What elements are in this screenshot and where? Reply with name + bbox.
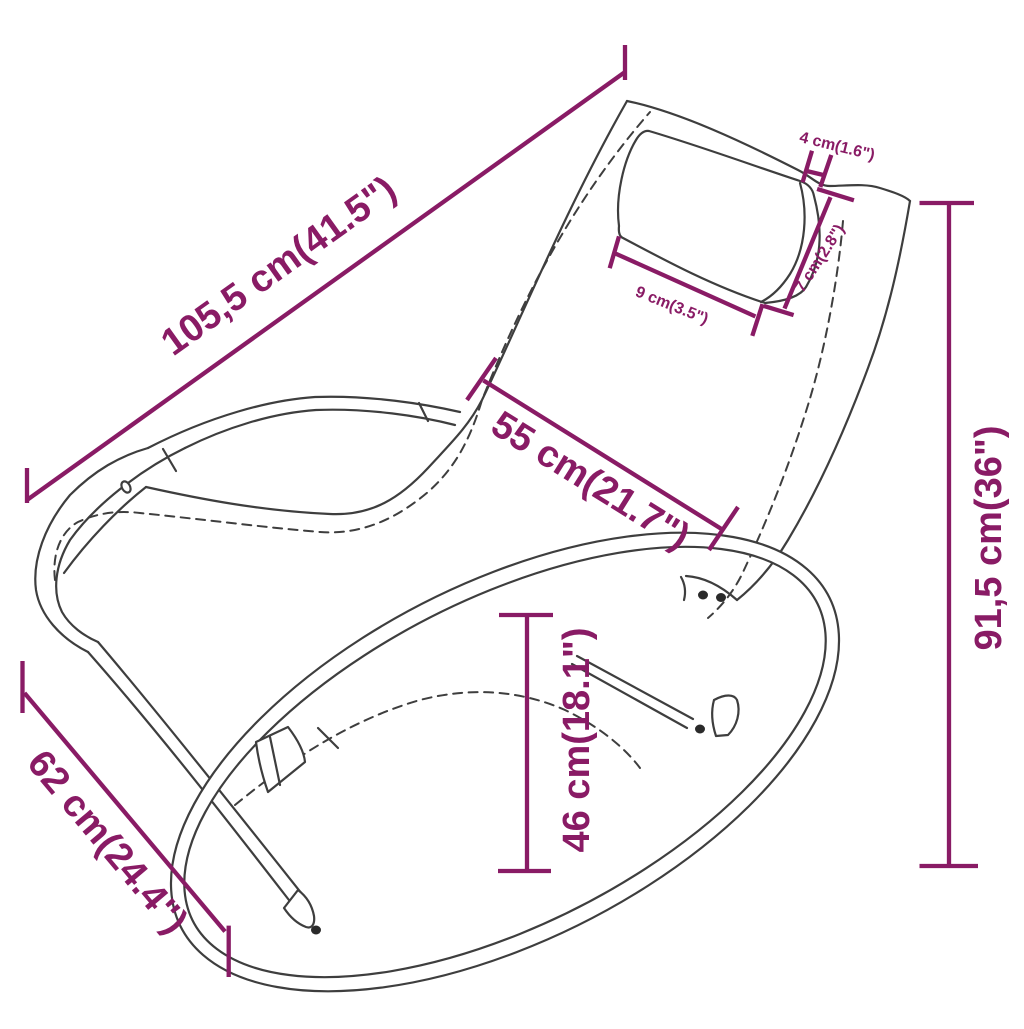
svg-text:46 cm(18.1"): 46 cm(18.1") <box>556 627 598 852</box>
svg-text:91,5 cm(36"): 91,5 cm(36") <box>968 425 1010 650</box>
